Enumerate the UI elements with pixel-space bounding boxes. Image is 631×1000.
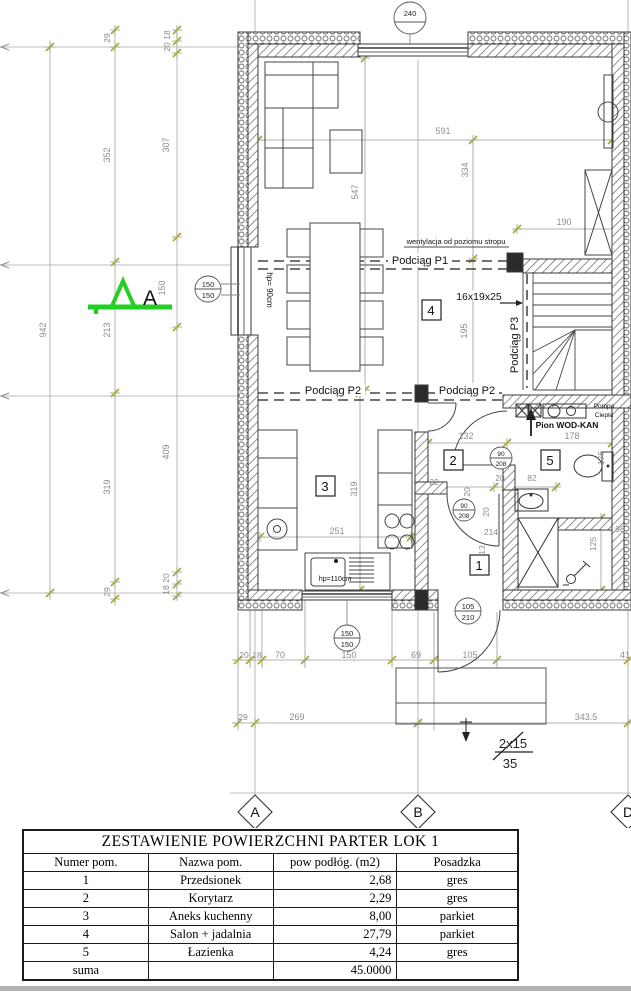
steps-num: 2x15	[499, 736, 527, 751]
area-summary-table: ZESTAWIENIE POWIERZCHNI PARTER LOK 1 Num…	[22, 829, 519, 981]
pompa-line1: Pompa	[594, 403, 615, 410]
marker-210: 210	[462, 613, 475, 622]
dim-20e: 20	[481, 507, 491, 517]
dim-b69: 69	[411, 650, 421, 660]
corner-sofa	[265, 62, 338, 188]
cell-posadzka: gres	[397, 872, 518, 890]
table-row: 1 Przedsionek 2,68 gres	[23, 872, 518, 890]
cell-pow: 2,68	[273, 872, 397, 890]
cell-posadzka: gres	[397, 944, 518, 962]
table-row: 4 Salon + jadalnia 27,79 parkiet	[23, 926, 518, 944]
cell-nazwa: Przedsionek	[148, 872, 273, 890]
col-header-numer: Numer pom.	[23, 854, 148, 872]
kitchen-sink	[305, 553, 390, 590]
cell-pow: 8,00	[273, 908, 397, 926]
floor-plan-drawing: A Podciąg P1 Podciąg P2 Podciąg P2 Podci…	[0, 0, 631, 828]
dim-b105: 105	[462, 650, 477, 660]
room-5-number: 5	[546, 453, 553, 468]
dim-b20: 20	[239, 650, 249, 660]
toilet	[574, 452, 613, 481]
window-left	[231, 247, 251, 335]
washing-machine	[267, 519, 287, 539]
dim-29b: 29	[102, 587, 112, 597]
marker-208a: 208	[496, 461, 507, 468]
dim-18b: 18	[161, 585, 171, 595]
dim-b41: 41	[620, 650, 630, 660]
room-2-number: 2	[449, 453, 456, 468]
dim-18a: 18	[162, 30, 172, 40]
dim-13: 13	[477, 545, 487, 555]
marker-105: 105	[462, 602, 475, 611]
vestibule-door	[447, 494, 499, 546]
dim-82: 82	[527, 473, 537, 483]
hp-kitchen-label: hp=110cm	[319, 576, 352, 583]
dim-150w: 150	[157, 280, 167, 295]
marker-150a-w: 150	[202, 280, 215, 289]
beam-p2a-label: Podciąg P2	[305, 385, 361, 397]
pompa-line2: Ciepła	[595, 412, 614, 419]
marker-90a: 90	[497, 451, 505, 458]
dim-334: 334	[460, 162, 470, 177]
dim-251: 251	[329, 526, 344, 536]
kitchen-counter-right	[378, 430, 412, 548]
washbasin	[515, 489, 548, 511]
dim-178: 178	[564, 431, 579, 441]
axis-a-label: A	[250, 804, 260, 820]
table-row: 5 Łazienka 4,24 gres	[23, 944, 518, 962]
plan-labels: Podciąg P1 Podciąg P2 Podciąg P2 Podciąg…	[202, 9, 631, 820]
cell-numer: 4	[23, 926, 148, 944]
table-row: 3 Aneks kuchenny 8,00 parkiet	[23, 908, 518, 926]
grid-arrows	[1, 44, 9, 596]
axis-b-label: B	[413, 804, 422, 820]
dim-132: 132	[458, 431, 473, 441]
dim-b70: 70	[275, 650, 285, 660]
dim-c343: 343.5	[575, 712, 598, 722]
dim-942: 942	[38, 322, 48, 337]
wardrobe-x	[585, 170, 612, 255]
cell-empty	[148, 962, 273, 981]
dimension-lines	[232, 58, 631, 730]
cooktop	[385, 514, 414, 549]
table-title: ZESTAWIENIE POWIERZCHNI PARTER LOK 1	[23, 830, 518, 854]
dim-547: 547	[350, 184, 360, 199]
dim-20c: 20	[495, 473, 505, 483]
table-sum-row: suma 45.0000	[23, 962, 518, 981]
dim-319l: 319	[102, 479, 112, 494]
dim-c269: 269	[289, 712, 304, 722]
kitchen-furniture	[258, 430, 414, 590]
dim-98: 98	[615, 524, 625, 534]
cell-numer: 5	[23, 944, 148, 962]
stair-spec: 16x19x25	[456, 291, 502, 303]
cell-numer: 2	[23, 890, 148, 908]
cell-nazwa: Łazienka	[148, 944, 273, 962]
cell-suma-label: suma	[23, 962, 148, 981]
marker-208b: 208	[459, 513, 470, 520]
dim-b18: 18	[252, 650, 262, 660]
section-letter: A	[143, 287, 157, 310]
floor-plan-sheet: A Podciąg P1 Podciąg P2 Podciąg P2 Podci…	[0, 0, 631, 1000]
dim-125: 125	[588, 537, 598, 551]
wodkan-label: Pion WOD-KAN	[536, 420, 599, 430]
electric-symbol	[563, 561, 590, 585]
col-header-pow: pow podłóg. (m2)	[273, 854, 397, 872]
hp-window-label: hp= 90cm	[265, 272, 274, 308]
dim-190: 190	[556, 217, 571, 227]
dining-table-chairs	[287, 223, 383, 371]
beam-p1-label: Podciąg P1	[392, 255, 448, 267]
cell-nazwa: Aneks kuchenny	[148, 908, 273, 926]
beam-p2b-label: Podciąg P2	[439, 385, 495, 397]
dimension-labels: 942 29 352 213 319 29 18 20 307 150 409 …	[38, 30, 630, 722]
col-header-nazwa: Nazwa pom.	[148, 854, 273, 872]
dim-195: 195	[459, 323, 469, 338]
marker-150b-w: 150	[341, 629, 354, 638]
coffee-table	[330, 130, 362, 173]
area-table-body: ZESTAWIENIE POWIERZCHNI PARTER LOK 1 Num…	[23, 830, 518, 980]
beam-lines	[258, 261, 527, 400]
cell-numer: 1	[23, 872, 148, 890]
dim-176: 176	[596, 451, 606, 465]
cell-pow: 27,79	[273, 926, 397, 944]
cell-pow: 2,29	[273, 890, 397, 908]
cell-posadzka: gres	[397, 890, 518, 908]
sheet-border-rule	[0, 986, 631, 991]
table-header-row: Numer pom. Nazwa pom. pow podłóg. (m2) P…	[23, 854, 518, 872]
dim-409: 409	[161, 444, 171, 459]
dim-29a: 29	[102, 33, 112, 43]
dim-319k: 319	[349, 481, 359, 496]
dim-214: 214	[484, 527, 498, 537]
steps-den: 35	[503, 756, 517, 771]
level-arrow	[460, 718, 472, 742]
vent-note: wentylacja od poziomu stropu	[406, 237, 506, 246]
window-top	[358, 44, 468, 56]
cell-pow: 4,24	[273, 944, 397, 962]
window-kitchen	[302, 591, 392, 600]
col-header-posadzka: Posadzka	[397, 854, 518, 872]
marker-90b: 90	[460, 503, 468, 510]
dim-20b: 20	[161, 573, 171, 583]
dim-b150: 150	[341, 650, 356, 660]
axis-d-label: D	[623, 804, 631, 820]
dim-20d: 20	[462, 487, 472, 497]
duct-shaft-x	[518, 518, 558, 587]
cell-posadzka: parkiet	[397, 908, 518, 926]
cell-empty	[397, 962, 518, 981]
hall-door	[428, 403, 456, 431]
dim-591: 591	[435, 126, 450, 136]
marker-150a-h: 150	[202, 291, 215, 300]
marker-150b-h: 150	[341, 640, 354, 649]
room-3-number: 3	[321, 479, 328, 494]
table-row: 2 Korytarz 2,29 gres	[23, 890, 518, 908]
dim-20a: 20	[162, 42, 172, 52]
beam-p3-label: Podciąg P3	[509, 317, 521, 373]
dim-213: 213	[102, 322, 112, 337]
cell-suma-value: 45.0000	[273, 962, 397, 981]
cell-nazwa: Korytarz	[148, 890, 273, 908]
room-4-number: 4	[427, 303, 434, 318]
dim-22: 22	[429, 477, 439, 487]
dim-307: 307	[161, 137, 171, 152]
marker-240-value: 240	[404, 9, 417, 18]
cell-nazwa: Salon + jadalnia	[148, 926, 273, 944]
axis-markers	[238, 795, 631, 828]
dim-c29: 29	[238, 712, 248, 722]
cell-posadzka: parkiet	[397, 926, 518, 944]
room-1-number: 1	[475, 558, 482, 573]
dim-352: 352	[102, 147, 112, 162]
cell-numer: 3	[23, 908, 148, 926]
